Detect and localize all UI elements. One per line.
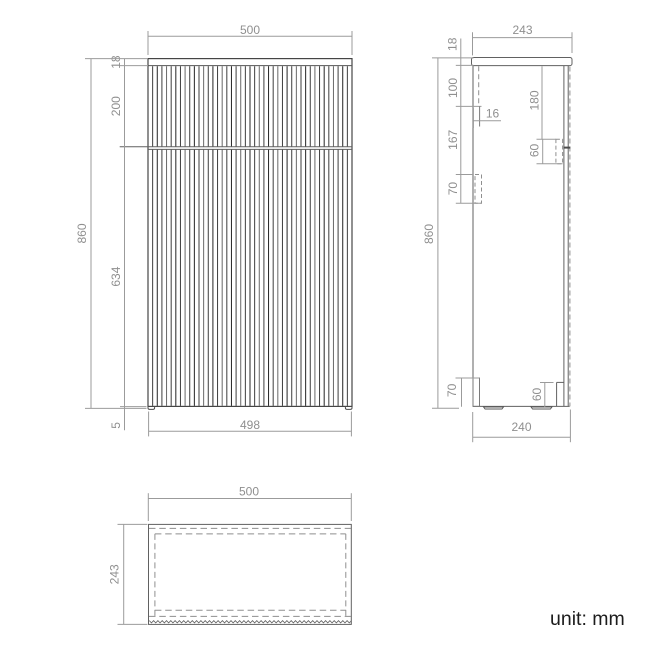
svg-text:5: 5: [109, 422, 123, 429]
svg-text:unit: mm: unit: mm: [550, 608, 625, 630]
svg-text:100: 100: [446, 78, 460, 98]
svg-text:70: 70: [445, 383, 459, 397]
svg-text:60: 60: [528, 144, 542, 158]
svg-text:500: 500: [240, 23, 260, 37]
svg-text:243: 243: [108, 564, 122, 584]
svg-text:18: 18: [446, 37, 460, 51]
svg-text:240: 240: [511, 420, 531, 434]
svg-text:860: 860: [422, 224, 436, 244]
svg-text:18: 18: [109, 55, 123, 69]
svg-text:860: 860: [75, 223, 89, 243]
svg-text:634: 634: [109, 266, 123, 286]
svg-text:498: 498: [240, 418, 260, 432]
svg-text:180: 180: [527, 90, 541, 110]
svg-text:70: 70: [446, 182, 460, 196]
svg-text:60: 60: [530, 388, 544, 402]
svg-text:200: 200: [109, 96, 123, 116]
svg-text:167: 167: [446, 129, 460, 149]
svg-text:500: 500: [239, 484, 259, 498]
svg-text:243: 243: [512, 23, 532, 37]
svg-text:16: 16: [486, 107, 500, 121]
